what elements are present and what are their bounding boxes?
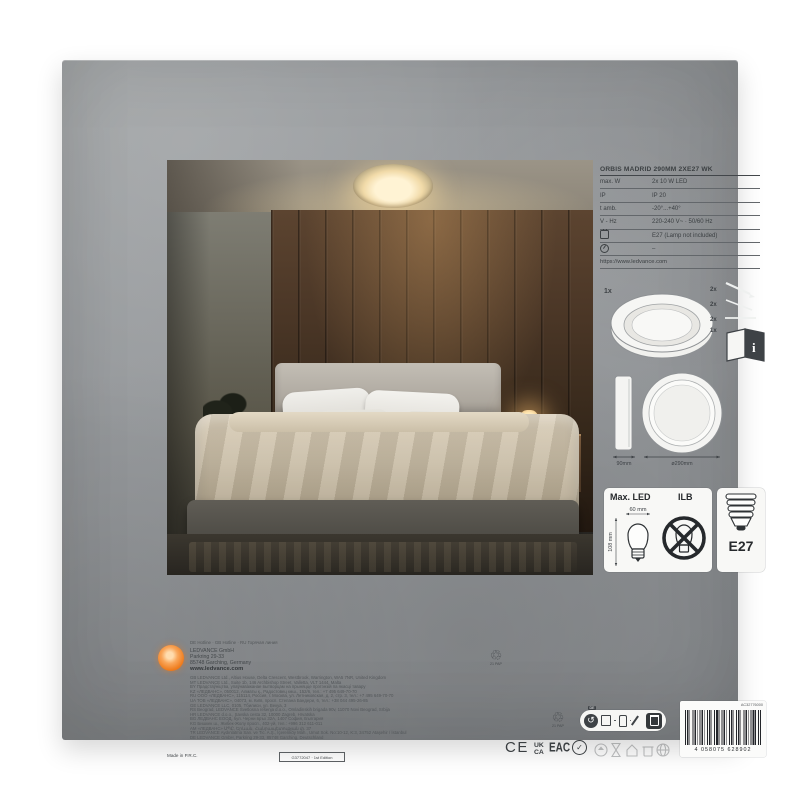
package-box: ORBIS MADRID 290MM 2XE27 WK max. W 2x 10… <box>62 60 738 740</box>
carton-icon <box>601 715 611 726</box>
faded-eco-icons <box>594 741 670 759</box>
pap-code: 21 PAP <box>548 724 568 728</box>
side-dimension-arrow <box>613 456 635 459</box>
green-dot-icon: ↺ <box>584 714 598 728</box>
ukca-mark: UK CA <box>534 742 544 756</box>
screws-qty: 2x <box>710 287 717 293</box>
hourglass-icon <box>612 744 620 757</box>
separator-dot <box>614 720 616 722</box>
manufacturer-block: DE Hotline · GB Hotline · RU Горячая лин… <box>190 641 480 740</box>
spec-label: IP <box>600 193 652 199</box>
ce-mark: CE <box>505 739 529 756</box>
globe-icon <box>657 744 669 756</box>
bulb-width-label: 60 mm <box>629 507 646 513</box>
pen-icon <box>631 715 639 725</box>
diameter-dimension-arrow <box>644 456 720 459</box>
svg-text:i: i <box>752 340 756 355</box>
company-website: www.ledvance.com <box>190 666 480 673</box>
disposal-info-pill: DE ↺ <box>580 710 666 731</box>
side-view-drawing-icon <box>615 376 632 450</box>
top-view-drawing-icon <box>642 373 722 453</box>
spec-label: t amb. <box>600 206 652 212</box>
disposal-country-tag: DE <box>588 706 596 710</box>
wall-plug-icon <box>726 300 752 310</box>
e27-box: E27 <box>717 488 765 572</box>
lamp-socket-icon <box>600 230 652 241</box>
separator-dot <box>630 720 632 722</box>
spec-label: V - Hz <box>600 219 652 225</box>
contents-diagram: 1x 2x 2x 2x 1x <box>596 277 776 373</box>
spec-row: E27 (Lamp not included) <box>600 230 760 243</box>
bedroom-photo <box>167 160 593 575</box>
hotline-line: DE Hotline · GB Hotline · RU Горячая лин… <box>190 641 480 646</box>
dimension-diagram: 90mm ø290mm <box>602 368 732 468</box>
bin-icon <box>643 747 654 756</box>
bulb-width-arrow <box>626 513 650 515</box>
rug <box>189 542 577 572</box>
spec-value: E27 (Lamp not included) <box>652 233 760 239</box>
distributor-list: GB LEDVANCE Ltd., Altius House, Delta Cr… <box>190 676 480 740</box>
bin-icon <box>650 715 659 726</box>
barcode-bars <box>685 710 761 745</box>
spec-value: – <box>652 246 760 252</box>
distributor-line: DE LEDVANCE GmbH, Parkring 29-33, 85748 … <box>190 736 480 741</box>
made-in-label: Made in P.R.C. <box>167 753 198 758</box>
manual-qty: 1x <box>710 328 717 334</box>
spec-value: 220-240 V~ · 50/60 Hz <box>652 219 760 225</box>
barcode-number: 4 058075 628902 <box>680 747 766 753</box>
recycle-triangle-icon: ♲ <box>548 710 568 724</box>
manual-icon: i <box>727 329 764 361</box>
spec-row: IP IP 20 <box>600 189 760 202</box>
spec-value: IP 20 <box>652 193 760 199</box>
spec-table: ORBIS MADRID 290MM 2XE27 WK max. W 2x 10… <box>600 166 760 269</box>
luminaire-qty: 1x <box>604 288 612 295</box>
product-title: ORBIS MADRID 290MM 2XE27 WK <box>600 166 760 176</box>
container-icon <box>619 715 627 727</box>
waste-bin-badge <box>646 713 662 729</box>
house-icon <box>627 745 637 756</box>
led-bulb-icon <box>628 524 648 562</box>
e27-label: E27 <box>717 538 765 554</box>
ilb-label: ILB <box>678 492 693 502</box>
spec-row: – <box>600 243 760 256</box>
spec-row: t amb. -20°...+40° <box>600 203 760 216</box>
eac-mark: EAC <box>549 741 570 755</box>
recycle-triangle-icon: ♲ <box>486 648 506 662</box>
bulb-height-label: 108 mm <box>608 532 614 552</box>
dimmer-icon <box>600 244 652 255</box>
no-incandescent-icon <box>664 518 704 558</box>
spec-value: -20°...+40° <box>652 206 760 212</box>
product-photo-canvas: ORBIS MADRID 290MM 2XE27 WK max. W 2x 10… <box>0 0 800 800</box>
edition-code: G3772047 · 1st Edition <box>292 755 333 760</box>
bulb-height-arrow <box>615 518 617 566</box>
side-dimension-label: 90mm <box>617 461 632 467</box>
spec-label: max. W <box>600 179 652 185</box>
barcode-article-code: AC32776000 <box>741 703 763 707</box>
plugs-qty: 2x <box>710 302 717 308</box>
recycle-circle-icon <box>595 744 607 756</box>
conformity-circle-icon: ✓ <box>572 740 587 755</box>
rods-qty: 2x <box>710 317 717 323</box>
duvet-fold <box>229 412 529 432</box>
luminaire-drawing-icon <box>611 294 713 358</box>
spec-value: 2x 10 W LED <box>652 179 760 185</box>
spec-row: max. W 2x 10 W LED <box>600 176 760 189</box>
lamp-restriction-graphics: 60 mm 108 mm <box>604 502 712 572</box>
ceiling-lamp <box>353 164 433 208</box>
screw-icon <box>726 283 755 298</box>
diameter-dimension-label: ø290mm <box>671 461 693 467</box>
website-url: https://www.ledvance.com <box>600 256 760 269</box>
ledvance-logo-dot <box>158 645 184 671</box>
max-led-box: Max. LED ILB 60 mm 108 mm <box>604 488 712 572</box>
pap-code: 21 PAP <box>486 662 506 666</box>
e27-base-icon <box>723 493 759 535</box>
barcode-label: AC32776000 4 058075 628902 <box>680 701 766 757</box>
spec-row: V - Hz 220-240 V~ · 50/60 Hz <box>600 216 760 229</box>
edition-code-box: G3772047 · 1st Edition <box>279 752 345 762</box>
max-led-label: Max. LED <box>610 492 651 502</box>
